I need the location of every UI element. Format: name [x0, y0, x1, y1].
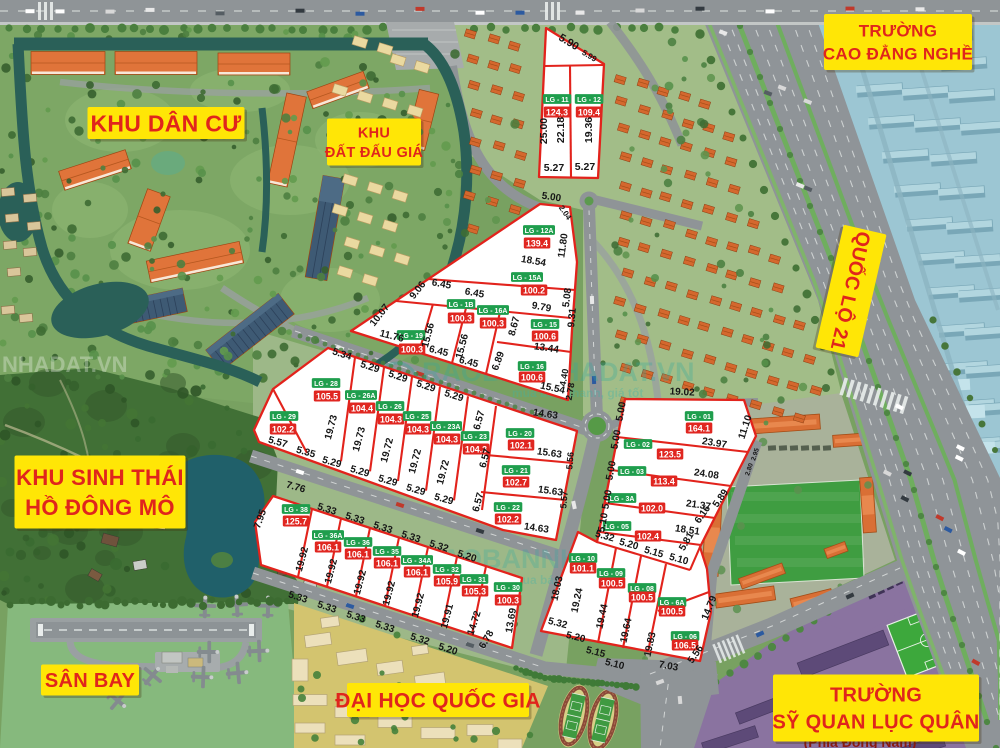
- svg-text:105.3: 105.3: [464, 586, 486, 596]
- svg-text:125.7: 125.7: [285, 516, 307, 526]
- svg-text:LG - 15: LG - 15: [533, 322, 557, 329]
- svg-text:LG - 23A: LG - 23A: [432, 424, 461, 431]
- svg-text:22.18: 22.18: [555, 117, 567, 143]
- svg-text:LG - 32: LG - 32: [435, 567, 459, 574]
- svg-text:KHU: KHU: [358, 125, 390, 141]
- svg-text:100.5: 100.5: [661, 606, 683, 616]
- svg-text:TRƯỜNG: TRƯỜNG: [859, 22, 938, 41]
- svg-text:104.3: 104.3: [380, 414, 402, 424]
- svg-text:CAO ĐẲNG NGHỀ: CAO ĐẲNG NGHỀ: [823, 45, 973, 64]
- svg-text:19.36: 19.36: [583, 117, 595, 143]
- svg-text:124.3: 124.3: [546, 107, 568, 117]
- svg-text:100.6: 100.6: [534, 331, 556, 341]
- svg-text:5.56: 5.56: [564, 452, 575, 470]
- svg-text:LG - 11: LG - 11: [545, 97, 568, 104]
- svg-text:LG - 21: LG - 21: [504, 468, 528, 475]
- svg-text:9.31: 9.31: [566, 307, 579, 328]
- svg-text:LG - 10: LG - 10: [571, 556, 595, 563]
- svg-text:123.5: 123.5: [659, 449, 681, 459]
- svg-text:102.2: 102.2: [497, 514, 519, 524]
- svg-text:113.4: 113.4: [653, 476, 675, 486]
- svg-text:LG - 16: LG - 16: [520, 364, 544, 371]
- svg-text:LG - 28: LG - 28: [314, 381, 338, 388]
- svg-text:ĐẤT ĐẤU GIÁ: ĐẤT ĐẤU GIÁ: [325, 144, 424, 161]
- svg-text:164.1: 164.1: [688, 423, 710, 433]
- svg-text:LG - 1B: LG - 1B: [449, 302, 474, 309]
- svg-text:100.3: 100.3: [450, 313, 472, 323]
- svg-text:106.1: 106.1: [347, 549, 369, 559]
- svg-text:102.2: 102.2: [272, 424, 294, 434]
- svg-text:102.7: 102.7: [505, 477, 527, 487]
- svg-text:LG - 09: LG - 09: [599, 571, 623, 578]
- svg-text:LG - 23: LG - 23: [463, 434, 487, 441]
- svg-text:100.5: 100.5: [601, 578, 623, 588]
- svg-text:100.6: 100.6: [521, 372, 543, 382]
- svg-text:100.3: 100.3: [497, 595, 519, 605]
- svg-text:102.1: 102.1: [510, 440, 532, 450]
- svg-text:109.4: 109.4: [578, 107, 600, 117]
- svg-text:LG - 29: LG - 29: [272, 414, 296, 421]
- svg-text:LG - 01: LG - 01: [687, 414, 711, 421]
- svg-text:LG - 02: LG - 02: [626, 442, 650, 449]
- svg-text:100.5: 100.5: [631, 592, 653, 602]
- svg-text:104.3: 104.3: [436, 434, 458, 444]
- svg-text:5.57: 5.57: [558, 491, 569, 509]
- svg-text:LG - 31: LG - 31: [462, 577, 486, 584]
- svg-text:102.4: 102.4: [637, 531, 659, 541]
- svg-text:100.3: 100.3: [482, 318, 504, 328]
- svg-text:25.00: 25.00: [538, 118, 550, 144]
- svg-text:19.02: 19.02: [669, 386, 695, 398]
- svg-text:LG - 38: LG - 38: [284, 507, 308, 514]
- svg-text:LG - 35: LG - 35: [375, 549, 399, 556]
- svg-text:KHU SINH THÁI: KHU SINH THÁI: [16, 465, 184, 490]
- svg-text:LG - 34A: LG - 34A: [403, 558, 432, 565]
- svg-text:102.0: 102.0: [641, 503, 663, 513]
- svg-text:100.2: 100.2: [523, 285, 545, 295]
- svg-text:LG - 20: LG - 20: [508, 431, 532, 438]
- svg-text:106.1: 106.1: [406, 567, 428, 577]
- svg-text:LG - 36: LG - 36: [346, 540, 370, 547]
- svg-text:106.1: 106.1: [317, 542, 339, 552]
- svg-text:LG - 12: LG - 12: [577, 97, 601, 104]
- svg-text:5.27: 5.27: [575, 161, 596, 173]
- svg-text:LG - 03: LG - 03: [620, 469, 644, 476]
- svg-text:LG - 15A: LG - 15A: [513, 275, 542, 282]
- svg-text:104.4: 104.4: [351, 403, 373, 413]
- svg-text:SỸ QUAN LỤC QUÂN: SỸ QUAN LỤC QUÂN: [772, 710, 979, 734]
- svg-text:LG - 36A: LG - 36A: [314, 533, 343, 540]
- svg-text:KHU DÂN CƯ: KHU DÂN CƯ: [90, 109, 242, 136]
- svg-text:LG - 26: LG - 26: [378, 404, 402, 411]
- svg-text:TRƯỜNG: TRƯỜNG: [830, 683, 922, 707]
- svg-text:5.27: 5.27: [544, 162, 565, 174]
- svg-text:105.9: 105.9: [436, 576, 458, 586]
- svg-text:LG - 22: LG - 22: [496, 505, 520, 512]
- svg-text:LG - 25: LG - 25: [405, 414, 429, 421]
- svg-text:SÂN BAY: SÂN BAY: [45, 668, 136, 692]
- svg-text:ĐẠI HỌC QUỐC GIA: ĐẠI HỌC QUỐC GIA: [335, 689, 540, 713]
- svg-text:105.5: 105.5: [316, 391, 338, 401]
- svg-text:139.4: 139.4: [526, 238, 548, 248]
- svg-text:HỒ ĐÔNG MÔ: HỒ ĐÔNG MÔ: [25, 495, 175, 520]
- svg-text:104.3: 104.3: [407, 424, 429, 434]
- svg-text:LG - 30: LG - 30: [496, 585, 520, 592]
- svg-text:106.1: 106.1: [376, 558, 398, 568]
- svg-text:101.1: 101.1: [572, 563, 594, 573]
- svg-text:NHADAT.VN: NHADAT.VN: [2, 352, 127, 377]
- svg-text:LG - 16A: LG - 16A: [479, 308, 508, 315]
- svg-text:LG - 26A: LG - 26A: [347, 393, 376, 400]
- svg-text:LG - 12A: LG - 12A: [525, 228, 554, 235]
